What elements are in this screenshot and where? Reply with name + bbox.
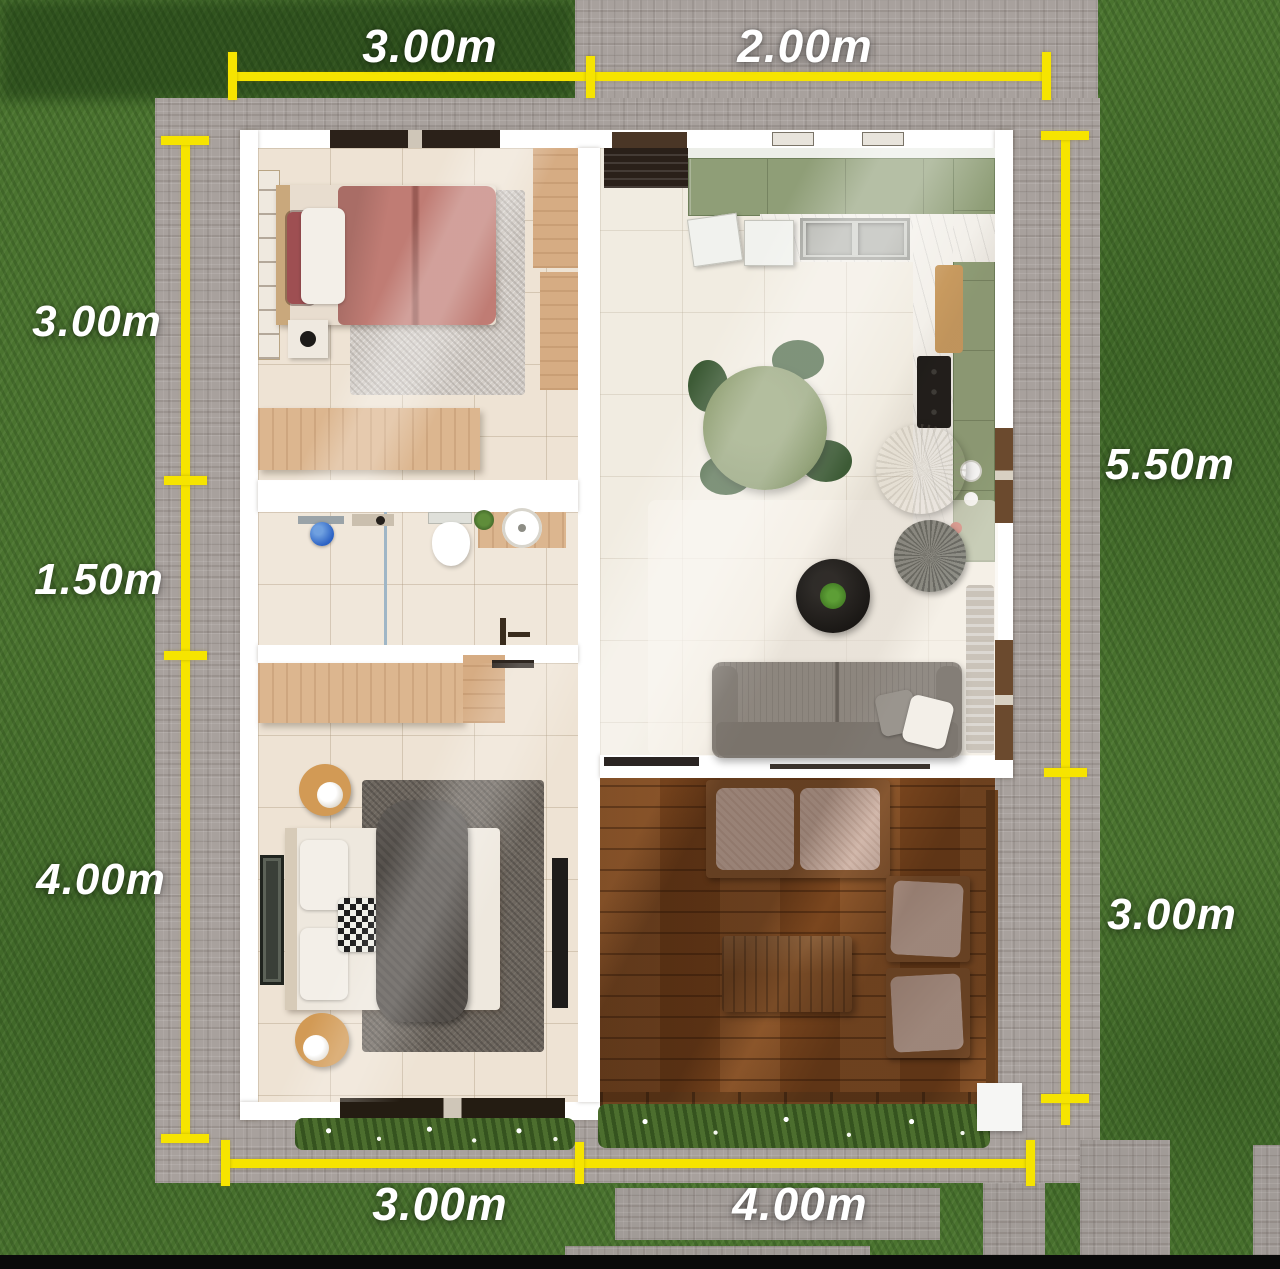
kitchen-sink-basin-left	[806, 223, 852, 255]
bedroom1-pillow	[301, 208, 345, 304]
dim-label-top-3m: 3.00m	[362, 19, 497, 73]
bathroom-door-swing	[508, 632, 530, 637]
pouf-white-fluffy	[876, 424, 966, 514]
dim-tick-left-top	[161, 136, 209, 145]
bedroom2-checker-pillow	[338, 898, 378, 952]
dim-tick-right-mid	[1044, 768, 1087, 777]
bathroom-shelf	[352, 514, 394, 526]
coffee-table-plant	[820, 583, 846, 609]
bedroom2-headboard	[285, 828, 297, 1010]
dim-tick-left-bottom	[161, 1134, 209, 1143]
wall-left	[240, 130, 258, 1120]
dim-line-right	[1061, 135, 1070, 1125]
bedroom2-art-frame	[260, 855, 284, 985]
dim-label-left-3m: 3.00m	[32, 297, 162, 347]
bathroom-plant	[474, 510, 494, 530]
bedroom1-blanket-pink	[338, 186, 496, 325]
terrace-sofa-cushion-right	[800, 788, 880, 870]
entry-door-mat	[604, 148, 689, 188]
bedroom1-window	[330, 130, 500, 148]
terrace-flower-box	[598, 1104, 990, 1148]
bedroom2-window	[340, 1098, 565, 1118]
bedroom1-lamp	[300, 331, 316, 347]
bedroom2-lamp-bottom	[303, 1035, 329, 1061]
paved-path-right-a	[983, 1183, 1045, 1256]
bedroom1-cabinet-right-a	[533, 148, 578, 268]
kitchen-window-sill-b	[862, 132, 904, 146]
bathroom-shelf-item	[376, 516, 385, 525]
dim-tick-left-mid2	[164, 651, 207, 660]
dim-label-bottom-3m: 3.00m	[372, 1177, 507, 1231]
dim-line-top	[232, 72, 1046, 81]
toilet-bowl	[432, 522, 470, 566]
floor-plan-canvas: 3.00m 2.00m 3.00m 1.50m 4.00m 5.50m 3.00…	[0, 0, 1280, 1269]
image-bottom-strip	[0, 1255, 1280, 1269]
terrace-chair-bottom-cushion	[890, 973, 964, 1053]
dim-label-right-3m: 3.00m	[1107, 890, 1237, 940]
bathroom-door-mark	[500, 618, 506, 645]
dim-tick-right-bottom	[1041, 1094, 1089, 1103]
sliding-door-track-b	[770, 764, 930, 769]
bedroom2-rail-mark	[492, 660, 534, 668]
dim-label-right-550m: 5.50m	[1105, 440, 1235, 490]
terrace-rail-right	[986, 790, 998, 1090]
living-window-frame-b	[995, 640, 1013, 760]
dim-tick-bottom-right	[1026, 1140, 1035, 1186]
shower-head	[310, 522, 334, 546]
bedroom2-blanket-grey	[376, 800, 468, 1022]
bedroom1-desk	[258, 408, 480, 470]
bedroom2-tv	[552, 858, 568, 1008]
bedroom2-window-planting	[295, 1118, 575, 1150]
dim-tick-top-mid	[586, 56, 595, 98]
dim-tick-bottom-mid	[575, 1142, 584, 1184]
terrace-sofa-cushion-left	[716, 788, 794, 870]
dim-label-left-4m: 4.00m	[36, 855, 166, 905]
paved-path-right-b	[1080, 1140, 1170, 1256]
dim-tick-right-top	[1041, 131, 1089, 140]
kitchen-counter-top-edge	[688, 148, 995, 158]
dim-line-left	[181, 140, 190, 1140]
bedroom2-desk	[258, 663, 463, 723]
kitchen-cooktop	[917, 356, 951, 428]
entry-door-leaf	[612, 132, 687, 148]
vanity-drain	[518, 524, 526, 532]
kitchen-window-sill-a	[772, 132, 814, 146]
bedroom2-lamp-top	[317, 782, 343, 808]
kitchen-cutting-board	[935, 265, 963, 353]
dim-tick-top-left	[228, 52, 237, 100]
living-curtain	[966, 585, 994, 753]
living-window-frame-a	[995, 428, 1013, 523]
dim-label-top-2m: 2.00m	[737, 19, 872, 73]
kitchen-appliance-a	[687, 213, 743, 267]
kitchen-appliance-b	[744, 220, 794, 266]
dining-table	[703, 366, 827, 490]
dim-label-bottom-4m: 4.00m	[732, 1177, 867, 1231]
pouf-rattan-grey	[894, 520, 966, 592]
dim-label-left-150m: 1.50m	[34, 555, 164, 605]
wall-bed1-bath	[258, 480, 578, 512]
bedroom1-cabinet-right-b	[540, 272, 578, 390]
kitchen-sink-basin-right	[858, 223, 904, 255]
dim-tick-top-right	[1042, 52, 1051, 100]
kitchen-cabinets-top	[688, 158, 995, 216]
terrace-step-pad	[977, 1083, 1022, 1131]
terrace-chair-top-cushion	[890, 880, 964, 958]
paved-path-corner	[1253, 1145, 1280, 1256]
dim-tick-left-mid1	[164, 476, 207, 485]
wall-divider-vertical	[578, 148, 600, 1102]
sliding-door-track	[604, 757, 699, 766]
shower-glass-partition	[384, 512, 387, 645]
dim-line-bottom	[225, 1159, 1030, 1168]
dim-tick-bottom-left	[221, 1140, 230, 1186]
terrace-table	[722, 936, 852, 1012]
